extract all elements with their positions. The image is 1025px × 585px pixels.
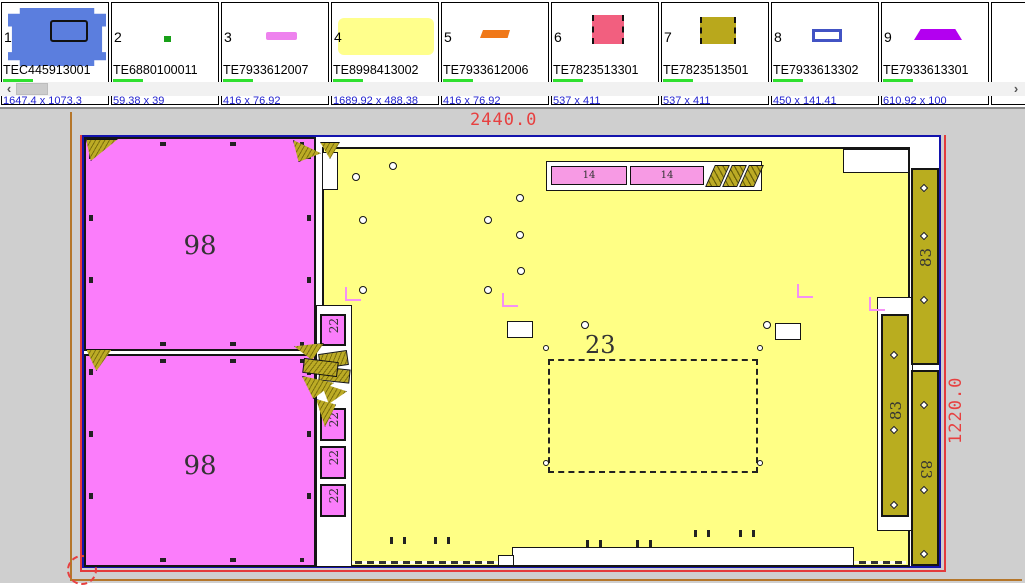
part-code: TE7823513501: [663, 63, 749, 77]
cutout-notch: [507, 321, 533, 338]
part-dimensions: 59.38 x 39: [113, 95, 164, 107]
shelf-pocket: 14 14: [546, 161, 762, 191]
part-code: TE7933613301: [883, 63, 969, 77]
sheet-width-dimension: 2440.0: [470, 110, 537, 130]
part-thumbnail-4: [338, 18, 434, 55]
part-index: 4: [334, 29, 342, 45]
part-thumbnail-7: [700, 17, 736, 44]
part-number-label: 98: [86, 451, 314, 481]
nested-part-strip-3[interactable]: 83: [881, 314, 909, 517]
part-thumbnail-1-cutout: [50, 20, 88, 42]
nested-part-rail-4[interactable]: 22: [320, 484, 346, 517]
nested-part-panel-bottom[interactable]: 98: [84, 354, 316, 567]
part-thumbnail-2: [164, 36, 171, 42]
part-number-label: 22: [327, 450, 341, 465]
dimension-line-left: [80, 135, 82, 572]
part-dimensions: 537 x 411: [553, 95, 601, 107]
part-code: TE8998413002: [333, 63, 419, 77]
part-number-label: 22: [327, 488, 341, 503]
part-code: TE7933612006: [443, 63, 529, 77]
part-index: 3: [224, 29, 232, 45]
part-dimensions: 1689.92 x 488.38: [333, 95, 418, 107]
part-index: 5: [444, 29, 452, 45]
nested-part-strip-1[interactable]: 83: [911, 168, 939, 365]
part-number-label: 23: [585, 331, 616, 359]
part-dimensions: 450 x 141.41: [773, 95, 837, 107]
scroll-left-icon[interactable]: ‹: [2, 82, 16, 96]
tab-marks: [96, 142, 304, 146]
part-number-label: 83: [887, 401, 905, 420]
scrollbar-thumb[interactable]: [16, 83, 48, 95]
nested-part-rail-1[interactable]: 22: [320, 314, 346, 346]
cutout-notch: [498, 555, 514, 566]
parts-strip-scrollbar[interactable]: ‹ ›: [0, 82, 1025, 96]
scroll-right-icon[interactable]: ›: [1009, 82, 1023, 96]
part-index: 9: [884, 29, 892, 45]
part-thumbnail-6: [592, 15, 624, 44]
part-code: TE6880100011: [113, 63, 198, 77]
cutout-notch: [775, 323, 801, 340]
part-number-label: 83: [917, 460, 935, 479]
part-dimensions: 416 x 76.92: [223, 95, 281, 107]
nested-part-rail-3[interactable]: 22: [320, 446, 346, 479]
part-index: 6: [554, 29, 562, 45]
part-thumbnail-5: [480, 30, 510, 38]
part-index: 1: [4, 29, 12, 45]
part-number-label: 98: [86, 231, 314, 261]
tab-marks: [96, 342, 304, 346]
part-number-label: 83: [917, 248, 935, 267]
part-code: TEC445913001: [3, 63, 91, 77]
cutout-notch: [512, 547, 854, 566]
nested-part-strip-2[interactable]: 83: [911, 370, 939, 566]
part-number-label: 14: [552, 167, 626, 185]
part-code: TE7823513301: [553, 63, 639, 77]
part-thumbnail-8: [812, 29, 842, 42]
sheet-height-dimension: 1220.0: [946, 314, 966, 444]
nested-part-back-panel[interactable]: [322, 147, 910, 567]
nested-part-panel-top[interactable]: 98: [84, 137, 316, 351]
part-dimensions: 416 x 76.92: [443, 95, 501, 107]
part-index: 2: [114, 29, 122, 45]
part-number-label: 14: [631, 167, 703, 185]
part-dimensions: 610.92 x 100: [883, 95, 947, 107]
nesting-canvas[interactable]: 2440.0 1220.0 98 98 23 14 14: [0, 107, 1025, 583]
nesting-app-window: { "parts_strip": { "cells": [ {"index":"…: [0, 0, 1025, 583]
back-panel-cutout: [548, 359, 758, 473]
frame-bottom-line: [70, 579, 1022, 581]
nested-part-shelf-2[interactable]: 14: [630, 166, 704, 185]
tab-marks: [96, 558, 304, 562]
parts-thumbnail-strip: 1 TEC445913001 1647.4 x 1073.3 2 TE68801…: [0, 0, 1025, 107]
tab-marks: [96, 359, 304, 363]
part-dimensions: 537 x 411: [663, 95, 711, 107]
part-index: 7: [664, 29, 672, 45]
part-number-label: 22: [327, 318, 341, 333]
part-code: TE7933613302: [773, 63, 859, 77]
part-code: TE7933612007: [223, 63, 309, 77]
part-dimensions: 1647.4 x 1073.3: [3, 95, 82, 107]
nested-part-shelf-1[interactable]: 14: [551, 166, 627, 185]
cutout-notch: [843, 149, 909, 173]
part-index: 8: [774, 29, 782, 45]
dimension-line-bottom: [80, 570, 946, 572]
frame-left-line: [70, 112, 72, 581]
part-thumbnail-9: [914, 29, 962, 40]
part-thumbnail-3: [266, 32, 297, 40]
